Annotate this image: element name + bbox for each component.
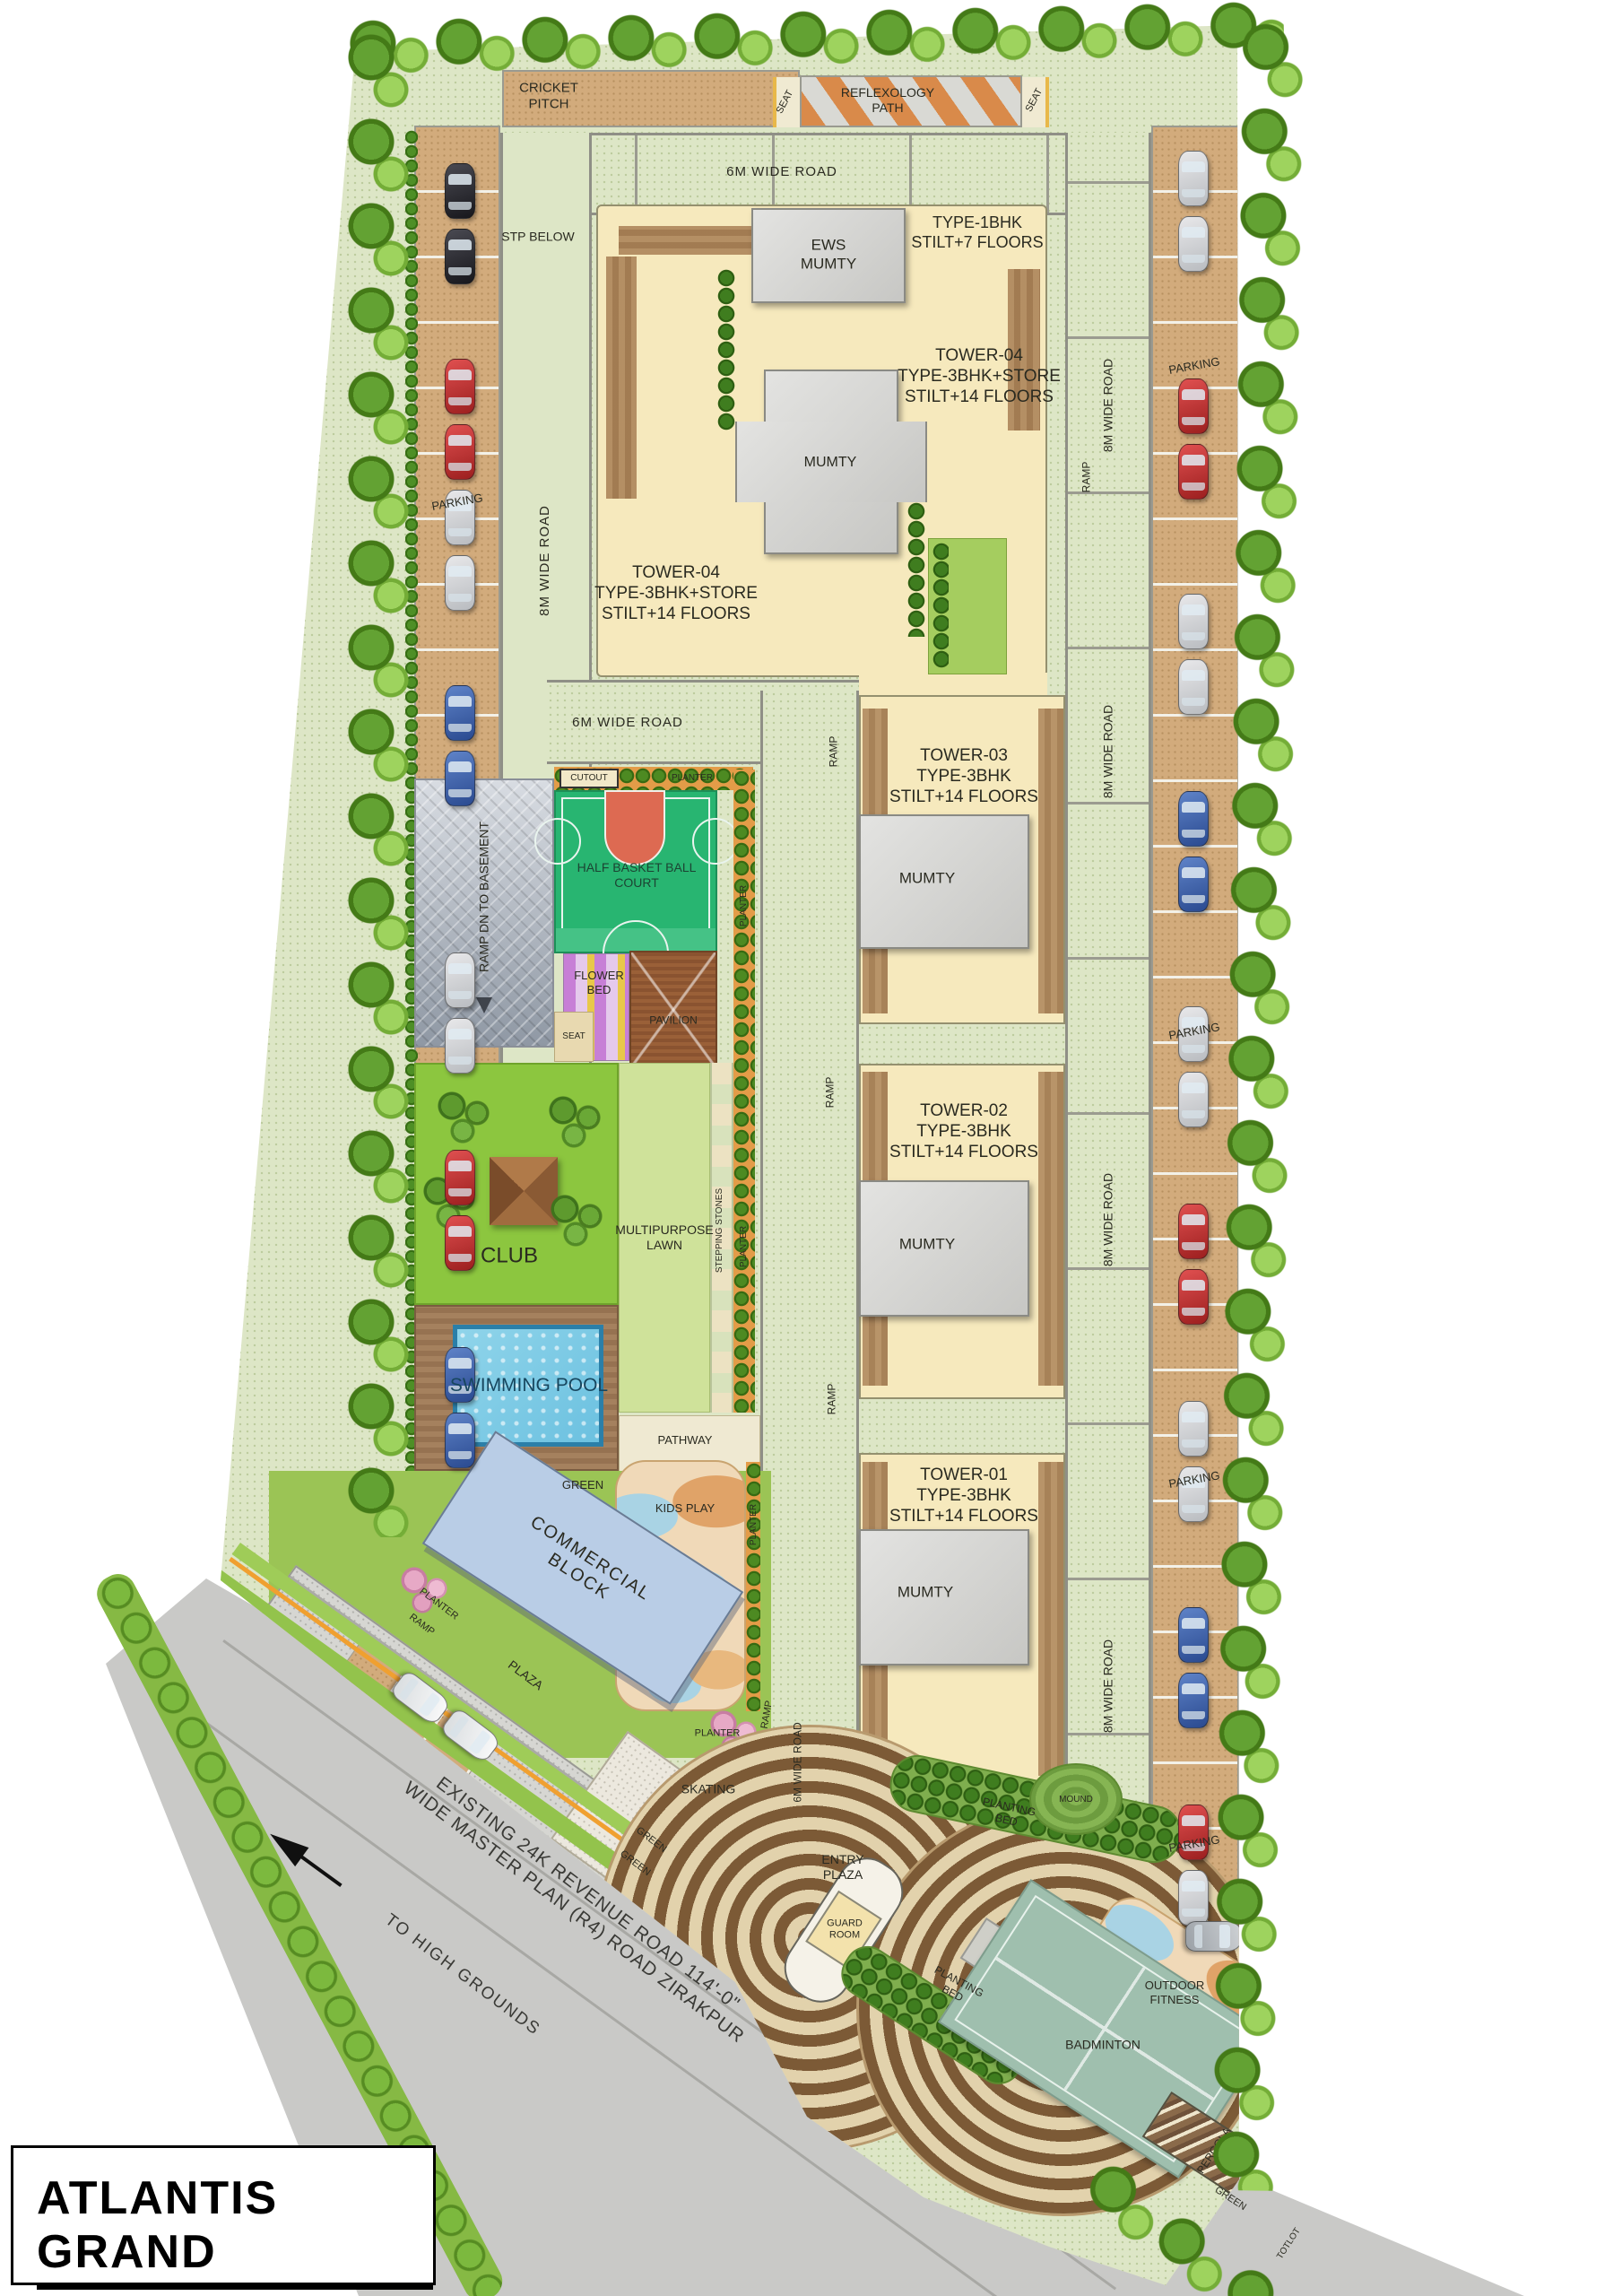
label-road-8m-right: 8M WIDE ROAD: [1100, 705, 1115, 798]
car-icon: [445, 424, 475, 480]
label-multipurpose-lawn: MULTIPURPOSE LAWN: [615, 1222, 713, 1253]
label-cutout: CUTOUT: [570, 773, 607, 784]
label-ramp: RAMP: [824, 1077, 837, 1109]
label-badminton: BADMINTON: [1065, 2037, 1141, 2052]
label-road-6m: 6M WIDE ROAD: [726, 164, 837, 180]
car-icon: [1178, 1072, 1209, 1127]
car-icon: [1178, 1269, 1209, 1325]
car-icon: [1178, 1607, 1209, 1663]
car-icon: [445, 229, 475, 284]
label-stp-below: STP BELOW: [501, 229, 574, 244]
label-tower-02: TOWER-02 TYPE-3BHK STILT+14 FLOORS: [889, 1100, 1038, 1163]
car-icon: [445, 1150, 475, 1205]
label-road-6m-mid: 6M WIDE ROAD: [572, 715, 683, 731]
label-kids-play: KIDS PLAY: [655, 1501, 715, 1516]
label-ews-mumty: EWS MUMTY: [801, 236, 856, 273]
label-mound: MOUND: [1059, 1795, 1093, 1805]
label-pavilion: PAVILION: [649, 1014, 698, 1028]
title-block: ATLANTIS GRAND SITE PLAN: [11, 2145, 436, 2285]
label-planter: PLANTER: [739, 1226, 750, 1267]
label-planter: PLANTER: [739, 885, 750, 926]
project-title: ATLANTIS GRAND: [37, 2171, 433, 2290]
label-mumty: MUMTY: [898, 1584, 953, 1603]
label-reflexology-path: REFLEXOLOGY PATH: [841, 85, 934, 116]
car-icon: [1178, 659, 1209, 715]
label-club: CLUB: [481, 1242, 538, 1268]
label-mumty: MUMTY: [804, 454, 857, 472]
label-green: GREEN: [562, 1478, 603, 1492]
label-seat: SEAT: [562, 1031, 585, 1042]
label-road-6m-entry: 6M WIDE ROAD: [792, 1722, 805, 1802]
car-icon: [1178, 216, 1209, 272]
tree-row-left: [344, 30, 416, 1537]
label-guard-room: GUARD ROOM: [827, 1918, 863, 1943]
label-ramp: RAMP: [828, 736, 841, 768]
label-skating: SKATING: [681, 1781, 735, 1796]
label-outdoor-fitness: OUTDOOR FITNESS: [1145, 1979, 1204, 2007]
label-tower-01: TOWER-01 TYPE-3BHK STILT+14 FLOORS: [889, 1465, 1038, 1527]
car-icon: [439, 1707, 502, 1764]
label-ramp-dn: RAMP DN TO BASEMENT: [476, 822, 491, 972]
label-entry-plaza: ENTRY PLAZA: [821, 1852, 863, 1883]
car-icon: [1178, 151, 1209, 206]
label-planter: PLANTER: [695, 1727, 741, 1739]
car-icon: [1178, 1401, 1209, 1457]
label-ramp: RAMP: [826, 1384, 839, 1415]
site-plan-canvas: EXISTING 24K REVENUE ROAD 114'-0" WIDE M…: [0, 0, 1622, 2296]
label-half-basketball: HALF BASKET BALL COURT: [577, 860, 697, 891]
label-road-8m-right: 8M WIDE ROAD: [1100, 1639, 1115, 1733]
car-icon: [1178, 1204, 1209, 1259]
car-icon: [445, 359, 475, 414]
car-icon: [1178, 444, 1209, 500]
label-tower-04: TOWER-04 TYPE-3BHK+STORE STILT+14 FLOORS: [594, 562, 758, 625]
label-tower-04: TOWER-04 TYPE-3BHK+STORE STILT+14 FLOORS: [898, 345, 1061, 408]
car-icon: [389, 1669, 452, 1726]
car-icon: [1178, 1870, 1209, 1926]
label-stepping-stones: STEPPING STONES: [715, 1188, 725, 1273]
label-mumty: MUMTY: [899, 870, 955, 889]
label-road-8m-left: 8M WIDE ROAD: [537, 505, 553, 616]
car-icon: [445, 555, 475, 611]
car-icon: [445, 163, 475, 219]
label-tower-03: TOWER-03 TYPE-3BHK STILT+14 FLOORS: [889, 745, 1038, 808]
label-swimming-pool: SWIMMING POOL: [450, 1374, 608, 1397]
car-icon: [1178, 1673, 1209, 1728]
car-icon: [445, 1215, 475, 1271]
label-flower-bed: FLOWER BED: [574, 969, 624, 997]
label-road-8m-right: 8M WIDE ROAD: [1100, 359, 1115, 452]
car-icon: [1178, 857, 1209, 912]
label-pathway: PATHWAY: [658, 1433, 713, 1448]
car-icon: [1178, 791, 1209, 847]
label-planter: PLANTER: [749, 1504, 759, 1545]
car-icon: [1178, 594, 1209, 649]
car-icon: [445, 685, 475, 741]
label-road-8m-right: 8M WIDE ROAD: [1100, 1173, 1115, 1266]
car-icon: [445, 952, 475, 1008]
car-icon: [445, 751, 475, 806]
label-mumty: MUMTY: [899, 1236, 955, 1255]
car-icon: [445, 1018, 475, 1074]
label-type-1bhk: TYPE-1BHK STILT+7 FLOORS: [911, 213, 1043, 253]
car-icon: [1178, 378, 1209, 434]
car-icon: [445, 1413, 475, 1468]
label-planter: PLANTER: [672, 773, 713, 784]
label-ramp: RAMP: [1080, 462, 1094, 493]
